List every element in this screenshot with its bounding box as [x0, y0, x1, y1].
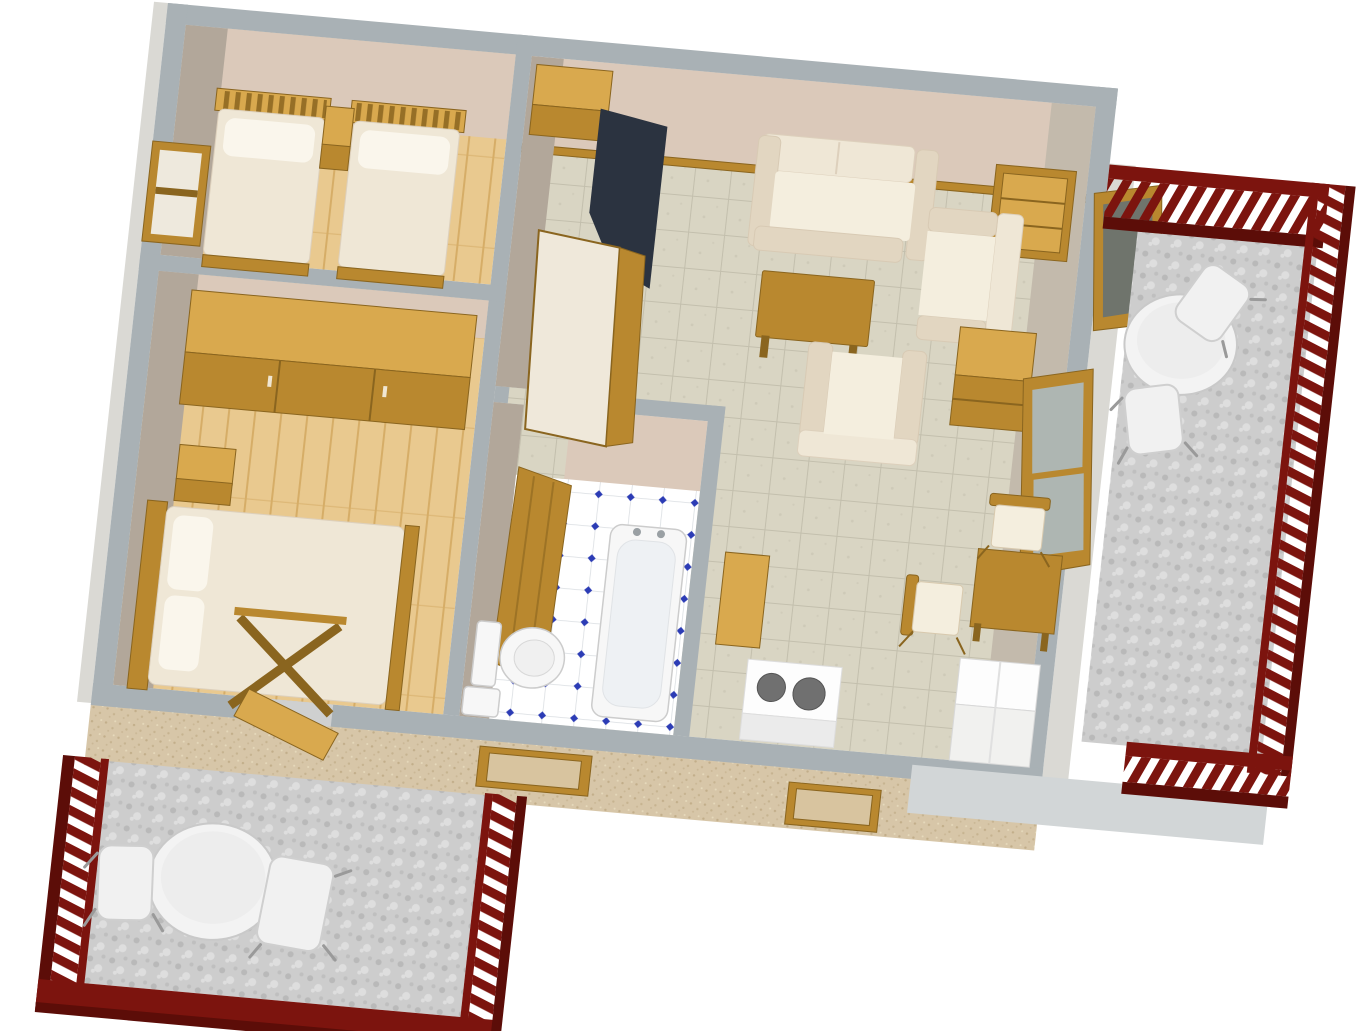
armchair-right	[916, 207, 1025, 347]
armchair-bottom	[797, 341, 928, 466]
refrigerator	[949, 658, 1040, 767]
double-bed	[127, 500, 420, 712]
twin-window	[142, 141, 211, 246]
master-nightstand	[174, 444, 236, 505]
single-bed-1	[198, 88, 332, 276]
stove	[739, 659, 842, 747]
kitchen-counter	[716, 552, 770, 648]
floorplan-render: 3D apartment floor plan rendering	[0, 0, 1366, 1031]
plan-projection: Exterior facade	[35, 1, 1364, 1031]
sofa	[747, 133, 940, 265]
washbasin	[461, 686, 500, 717]
left-terrace: Lower terrace	[35, 755, 527, 1031]
facade-window-kitchen	[785, 782, 882, 832]
single-bed-2	[333, 100, 467, 288]
floorplan-svg: 3D apartment floor plan rendering	[0, 0, 1366, 1031]
hall-closet	[516, 230, 655, 448]
